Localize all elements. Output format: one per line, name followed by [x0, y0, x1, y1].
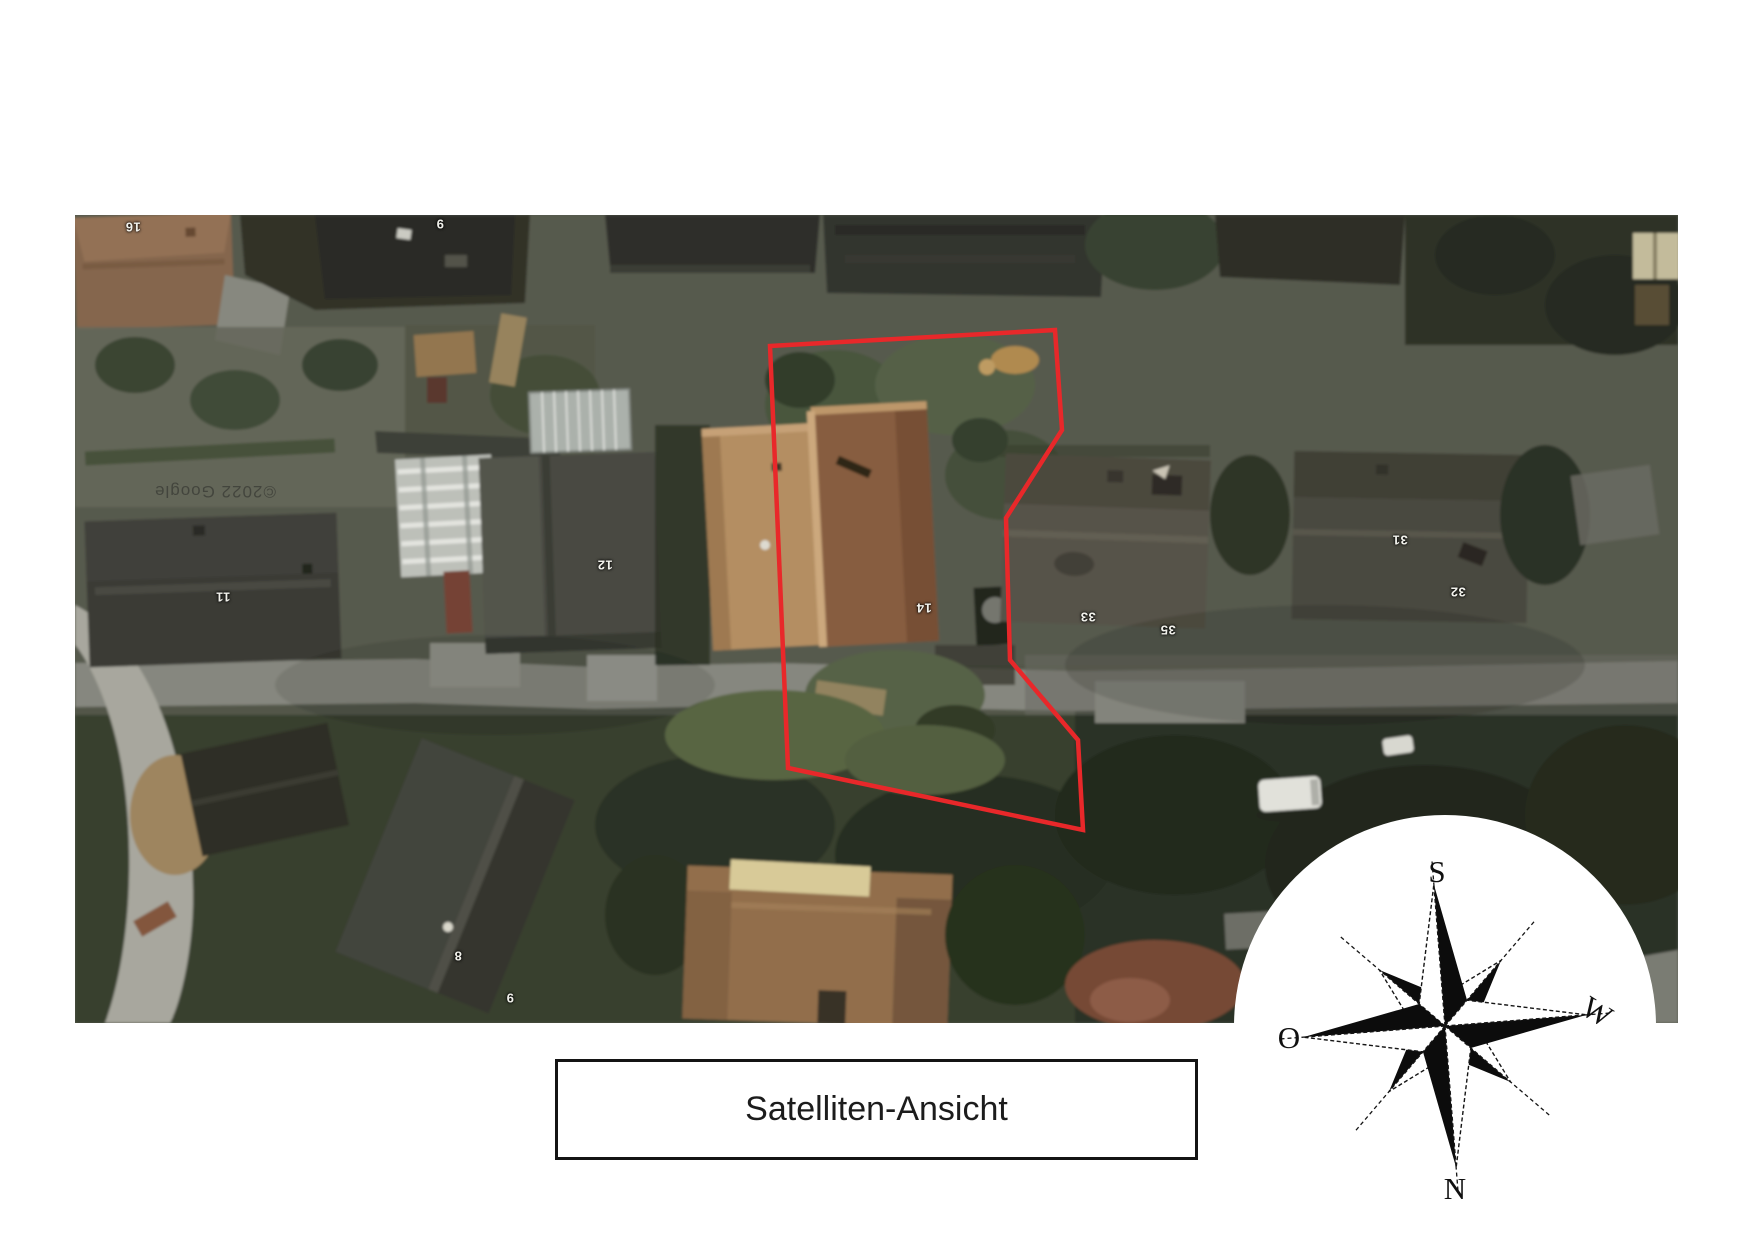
house-number-label: 9: [436, 217, 444, 232]
house-number-label: 31: [1392, 533, 1407, 548]
house-number-label: 16: [125, 220, 140, 235]
house-number-label: 33: [1080, 610, 1095, 625]
house-number-label: 9: [506, 991, 514, 1006]
satellite-image: 1691112143335313289 ©2022 Google: [75, 215, 1678, 1023]
caption-text: Satelliten-Ansicht: [745, 1090, 1008, 1129]
compass-east-label: O: [1278, 1020, 1300, 1055]
house-number-label: 8: [454, 949, 462, 964]
house-number-label: 11: [216, 590, 231, 605]
page: 1691112143335313289 ©2022 Google: [0, 0, 1754, 1240]
house-number-label: 12: [597, 558, 612, 573]
house-number-label: 32: [1450, 585, 1465, 600]
house-number-layer: 1691112143335313289: [75, 215, 1678, 1023]
compass-north-label: N: [1444, 1171, 1466, 1206]
caption-box: Satelliten-Ansicht: [555, 1059, 1198, 1160]
house-number-label: 14: [916, 601, 931, 616]
house-number-label: 35: [1160, 623, 1175, 638]
